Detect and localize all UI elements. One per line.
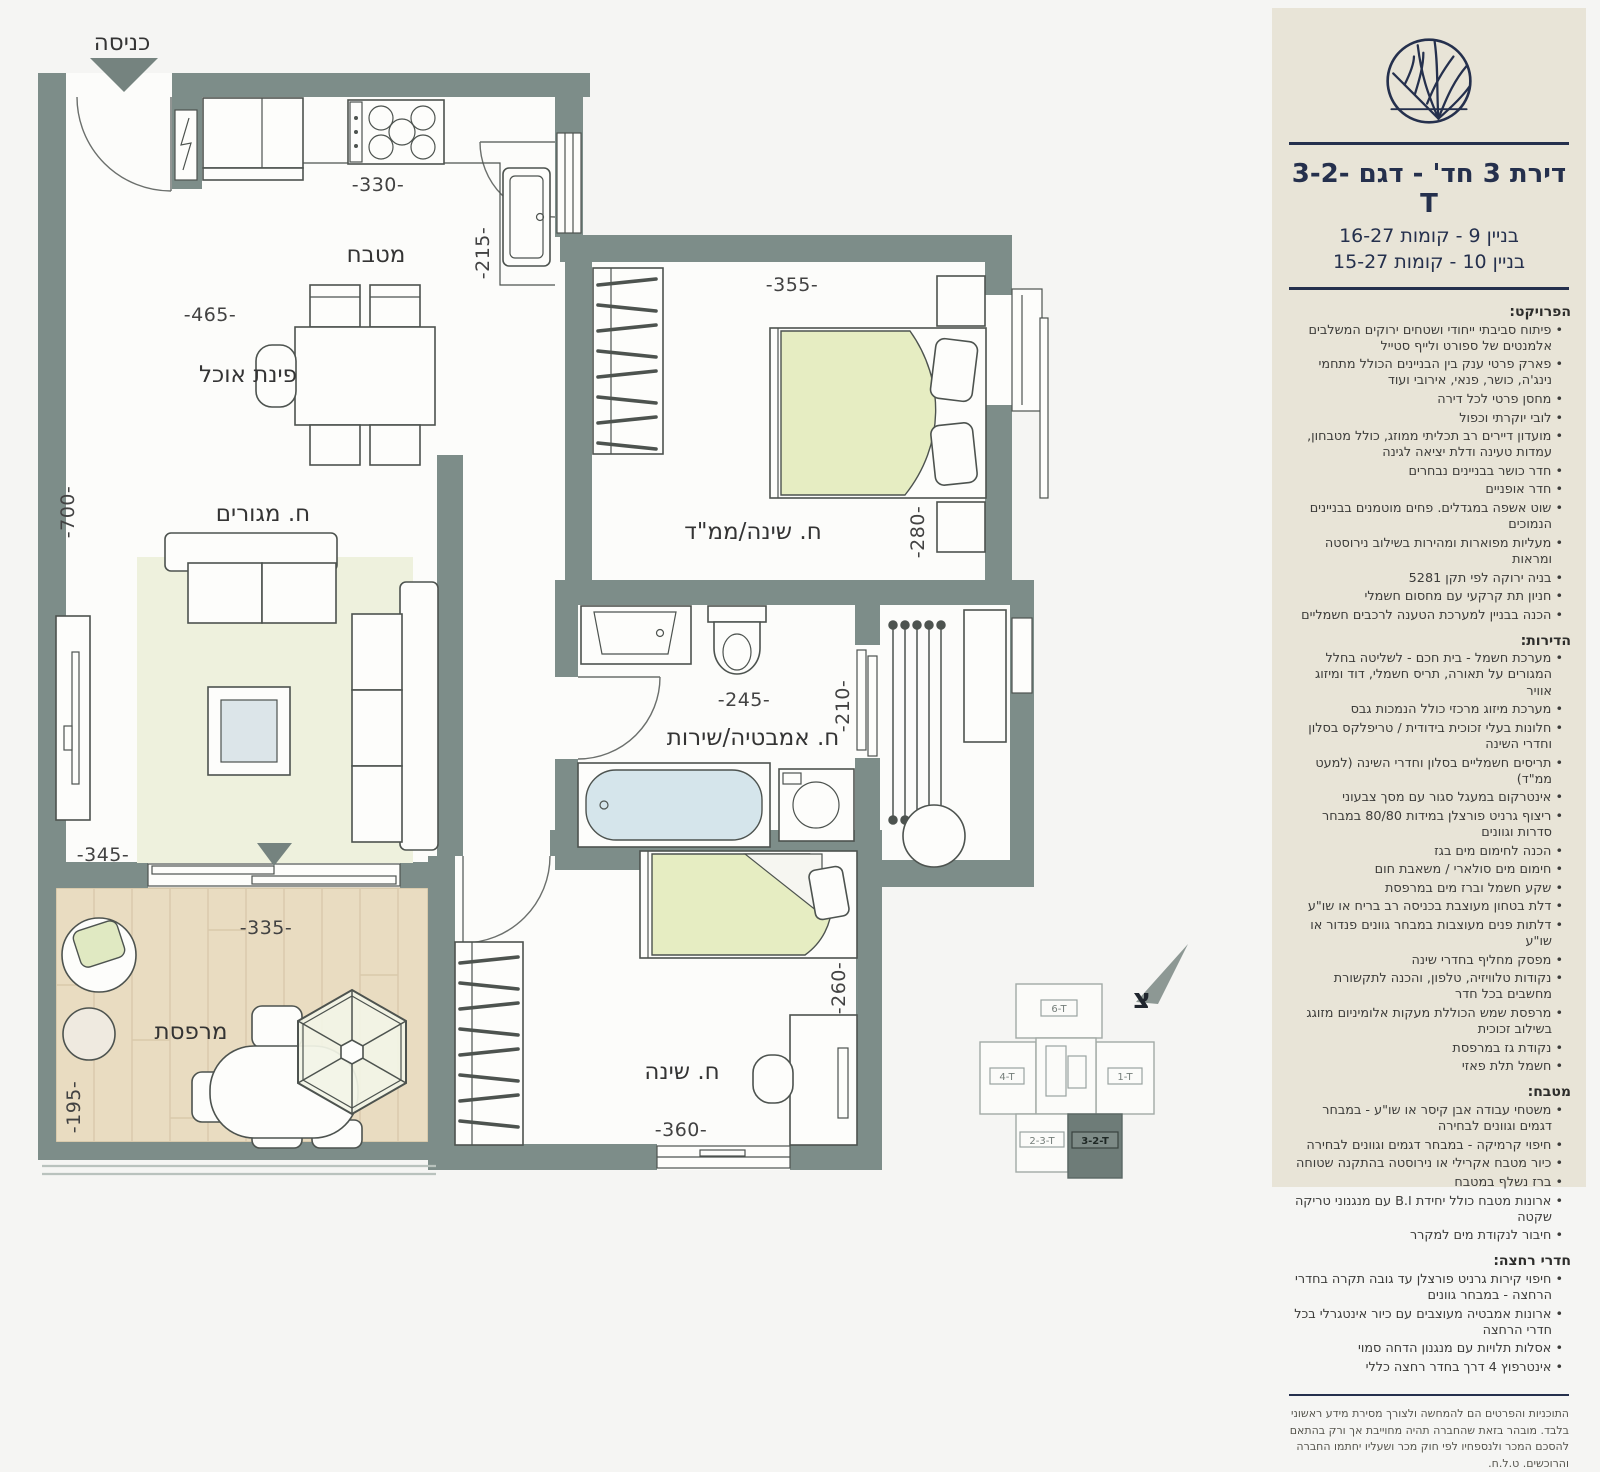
spec-item: חימום מים סולארי / משאבת חום xyxy=(1287,862,1563,878)
living-dim-345: -345- xyxy=(77,844,129,866)
spec-item: משטחי עבודה אבן קיסר או שו"ע - במבחר דגמ… xyxy=(1287,1103,1563,1135)
spec-item: חיפוי קירות גרניט פורצלן עד גובה תקרה בח… xyxy=(1287,1272,1563,1304)
nightstand xyxy=(937,276,985,326)
master-dim-280: -280- xyxy=(907,506,929,558)
bathtub-icon xyxy=(578,763,770,847)
washing-machine-icon xyxy=(779,769,854,841)
spec-item: תריסים חשמליים בסלון וחדרי השינה (למעט מ… xyxy=(1287,756,1563,788)
balcony-railing xyxy=(42,1166,436,1174)
spec-item: פיתוח סביבתי ייחודי ושטחים ירוקים המשלבי… xyxy=(1287,323,1563,355)
keyplan-unit-23t: 2-3-T xyxy=(1029,1136,1055,1147)
balcony-sliding-door xyxy=(148,864,400,886)
spec-item: ברז נשלף במטבח xyxy=(1287,1175,1563,1191)
spec-item: חיפוי קרמיקה - במבחר דגמים וגוונים לבחיר… xyxy=(1287,1138,1563,1154)
spec-item: מרפסת שמש הכוללת מעקות אלומיניום מזוגג ב… xyxy=(1287,1006,1563,1038)
ac-unit xyxy=(964,610,1006,742)
dining-table xyxy=(295,327,435,425)
spec-item: מערכת מיזוג מרכזי כולל הנמכות גבס xyxy=(1287,702,1563,718)
spec-item: ריצוף גרניט פורצלן במידות 80/80 במבחר סד… xyxy=(1287,809,1563,841)
dining-chair xyxy=(310,285,360,327)
spec-item: אינטרקום במעגל סגור עם מסך צבעוני xyxy=(1287,790,1563,806)
kitchen-dim-465: -465- xyxy=(184,304,236,326)
spec-item: חדר כושר בבניינים נבחרים xyxy=(1287,464,1563,480)
section-items: חיפוי קירות גרניט פורצלן עד גובה תקרה בח… xyxy=(1287,1272,1571,1376)
dining-chair xyxy=(310,425,360,465)
electrical-panel-icon xyxy=(175,110,197,180)
dining-chair xyxy=(370,425,420,465)
section-heading: הדירות: xyxy=(1287,633,1571,649)
wardrobe xyxy=(593,268,663,454)
spec-item: כיור מטבח אקרילי או נירוסטה בהתקנה שטוחה xyxy=(1287,1156,1563,1172)
spec-item: מעליות מפוארות ומהירות בשילוב נירוסטה ומ… xyxy=(1287,536,1563,568)
kitchen-dim-215: -215- xyxy=(472,227,494,279)
master-dim-355: -355- xyxy=(766,274,818,296)
dining-label: פינת אוכל xyxy=(199,362,297,388)
wardrobe xyxy=(455,942,523,1145)
bathroom-sink-icon xyxy=(581,606,691,664)
section-items: פיתוח סביבתי ייחודי ושטחים ירוקים המשלבי… xyxy=(1287,323,1571,624)
spec-item: לובי יוקרתי וכפול xyxy=(1287,411,1563,427)
living-label: ח. מגורים xyxy=(216,501,310,527)
kitchen-dim-330: -330- xyxy=(352,174,404,196)
double-bed xyxy=(770,328,986,498)
water-heater-icon xyxy=(903,805,965,867)
keyplan-unit-4t: 4-T xyxy=(999,1072,1015,1083)
bathroom-label: ח. אמבטיה/שירות xyxy=(667,725,840,751)
spec-item: אינטרפוץ 4 דרך בחדר רחצה כללי xyxy=(1287,1360,1563,1376)
spec-item: בניה ירוקה לפי תקן 5281 xyxy=(1287,571,1563,587)
kitchen-label: מטבח xyxy=(347,242,406,268)
spec-item: חיבור לנקודת מים למקרר xyxy=(1287,1228,1563,1244)
spec-item: ארונות אמבטיה מעוצבים עם כיור אינטגרלי ב… xyxy=(1287,1307,1563,1339)
floor-plan: מטבח -330- -215- -465- פינת אוכל xyxy=(0,0,1240,1208)
bath-dim-245: -245- xyxy=(718,689,770,711)
spec-item: חניון תת קרקעי עם מחסום חשמלי xyxy=(1287,589,1563,605)
spec-item: נקודות טלוויזיה, טלפון, והכנה לתקשורת מח… xyxy=(1287,971,1563,1003)
balcony-dim-195: -195- xyxy=(63,1081,85,1133)
divider xyxy=(1289,287,1569,290)
spec-item: מערכת חשמל - בית חכם - לשליטה בחלל המגור… xyxy=(1287,651,1563,699)
building-line-1: בניין 9 - קומות 16-27 xyxy=(1287,225,1571,247)
divider xyxy=(1289,142,1569,145)
info-panel: דירת 3 חד' - דגם 3-2-T בניין 9 - קומות 1… xyxy=(1272,8,1586,1187)
nightstand xyxy=(937,502,985,552)
dining-chair xyxy=(370,285,420,327)
section-heading: מטבח: xyxy=(1287,1084,1571,1100)
bedroom2-label: ח. שינה xyxy=(644,1059,719,1085)
kitchen-sink-icon xyxy=(503,168,550,266)
section-heading: הפרויקט: xyxy=(1287,304,1571,320)
desk-chair xyxy=(753,1055,793,1103)
spec-item: דלת בטחון מעוצבת בכניסה רב בריח או שו"ע xyxy=(1287,899,1563,915)
lounge-chair xyxy=(62,918,136,992)
balcony-label: מרפסת xyxy=(154,1019,227,1045)
desk xyxy=(790,1015,857,1145)
kitchen-window xyxy=(557,133,581,233)
spec-item: חשמל תלת פאזי xyxy=(1287,1059,1563,1075)
utility-sliding-door xyxy=(855,645,880,758)
bedroom2-dim-360: -360- xyxy=(655,1119,707,1141)
keyplan-unit-1t: 1-T xyxy=(1117,1072,1133,1083)
plan-title-text: דירת 3 חד' - דגם xyxy=(1359,159,1567,189)
spec-item: מחסן פרטי לכל דירה xyxy=(1287,392,1563,408)
master-label: ח. שינה/ממ"ד xyxy=(684,519,821,545)
utility-window xyxy=(1012,618,1032,693)
spec-sections: הפרויקט:פיתוח סביבתי ייחודי ושטחים ירוקי… xyxy=(1287,304,1571,1376)
coffee-table xyxy=(208,687,290,775)
section-items: מערכת חשמל - בית חכם - לשליטה בחלל המגור… xyxy=(1287,651,1571,1075)
stove-icon xyxy=(348,100,444,164)
bath-dim-210: -210- xyxy=(832,680,854,732)
divider xyxy=(1289,1394,1569,1396)
spec-item: חדר אופניים xyxy=(1287,482,1563,498)
bedroom2-dim-260: -260- xyxy=(828,962,850,1014)
plan-title: דירת 3 חד' - דגם 3-2-T xyxy=(1287,159,1571,219)
spec-item: נקודת גז במרפסת xyxy=(1287,1041,1563,1057)
spec-item: שקע חשמל וברז מים במרפסת xyxy=(1287,881,1563,897)
bedroom2-window xyxy=(657,1146,790,1168)
spec-item: חלונות בעלי זכוכית בידודית / טריפלקס בסל… xyxy=(1287,721,1563,753)
spec-item: ארונות מטבח כולל יחידת B.I עם מנגנוני טר… xyxy=(1287,1194,1563,1226)
section-heading: חדרי רחצה: xyxy=(1287,1253,1571,1269)
living-dim-700: -700- xyxy=(57,486,79,538)
keyplan-unit-32t: 3-2-T xyxy=(1081,1136,1109,1147)
brand-logo-icon xyxy=(1382,34,1476,128)
north-label: צ xyxy=(1133,984,1151,1015)
side-table xyxy=(63,1008,115,1060)
entrance-label: כניסה xyxy=(94,30,150,56)
disclaimer-text: התוכניות והפרטים הם להמחשה ולצורך מסירת … xyxy=(1289,1406,1569,1472)
section-items: משטחי עבודה אבן קיסר או שו"ע - במבחר דגמ… xyxy=(1287,1103,1571,1244)
key-plan: 6-T 4-T 1-T 2-3-T 3-2-T xyxy=(980,984,1154,1178)
building-line-2: בניין 10 - קומות 15-27 xyxy=(1287,251,1571,273)
fridge-cabinets xyxy=(203,98,303,180)
spec-item: הכנה לחימום מים בגז xyxy=(1287,844,1563,860)
spec-item: אסלות תלויות עם מנגנון הדחה סמוי xyxy=(1287,1341,1563,1357)
spec-item: שוט אשפה במגדלים. פחים מוטמנים בבניינים … xyxy=(1287,501,1563,533)
spec-item: פארק פרטי ענק בין הבניינים הכולל מתחמי נ… xyxy=(1287,357,1563,389)
spec-item: דלתות פנים מעוצבות במבחר גוונים פנדור או… xyxy=(1287,918,1563,950)
keyplan-unit-6t: 6-T xyxy=(1051,1004,1067,1015)
north-arrow-icon: צ xyxy=(1133,944,1188,1015)
tv-unit xyxy=(56,616,90,820)
spec-item: מפסק מחליף בחדרי שינה xyxy=(1287,953,1563,969)
balcony-dim-335: -335- xyxy=(240,917,292,939)
spec-item: הכנה בבניין למערכת הטענה לרכבים חשמליים xyxy=(1287,608,1563,624)
spec-item: מועדון דיירים רב תכליתי ממוזג, כולל מטבח… xyxy=(1287,429,1563,461)
single-bed xyxy=(640,851,857,958)
